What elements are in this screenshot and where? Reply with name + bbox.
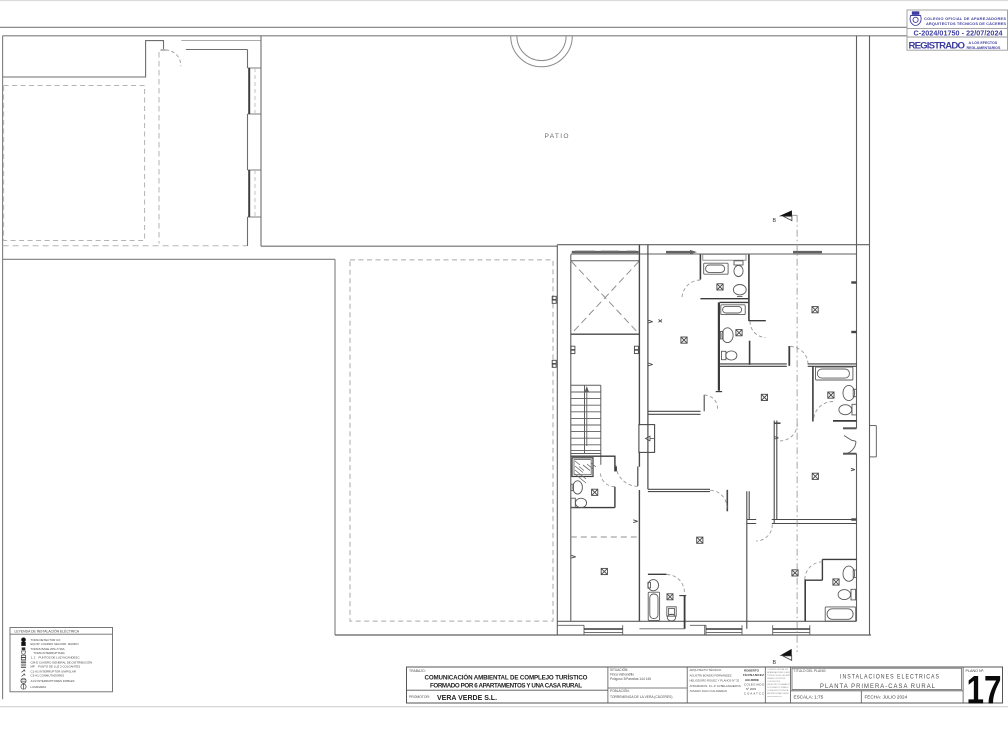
svg-text:B: B xyxy=(773,218,777,224)
svg-text:POBLACIÓN:: POBLACIÓN: xyxy=(610,688,630,693)
svg-text:REGISTRADO: REGISTRADO xyxy=(909,41,966,52)
svg-text:LUMINARIA: LUMINARIA xyxy=(31,685,47,689)
svg-text:COAATCC: COAATCC xyxy=(744,692,764,696)
svg-text:C-2024/01750: C-2024/01750 xyxy=(767,681,781,683)
svg-text:TITULO DEL PLANO:: TITULO DEL PLANO: xyxy=(794,669,827,673)
svg-text:1, 2 PUNTOS DE LUZ INCANDES: 1, 2 PUNTOS DE LUZ INCANDESC. xyxy=(31,655,81,659)
svg-text:ARQUITECTO TÉCNICO:: ARQUITECTO TÉCNICO: xyxy=(690,667,723,672)
svg-text:PLANTA PRIMERA-CASA RURAL: PLANTA PRIMERA-CASA RURAL xyxy=(820,683,936,690)
svg-text:REGLAMENTARIOS: REGLAMENTARIOS xyxy=(967,46,1001,50)
svg-text:PROMOTOR:: PROMOTOR: xyxy=(409,695,430,699)
svg-text:COMUNICACIÓN AMBIENTAL DE COMP: COMUNICACIÓN AMBIENTAL DE COMPLEJO TURÍS… xyxy=(425,673,588,681)
svg-text:17: 17 xyxy=(967,669,1002,713)
svg-text:C-2024/01750 - 22/07/2024: C-2024/01750 - 22/07/2024 xyxy=(914,29,1003,38)
svg-text:AUTENTICIDAD VERIF.: AUTENTICIDAD VERIF. xyxy=(767,692,789,695)
svg-text:ROBERTO: ROBERTO xyxy=(744,669,760,673)
svg-text:AGUIRRE: AGUIRRE xyxy=(745,678,759,682)
svg-text:ATRAMUROS, S.L.P. JA BELANGIER: ATRAMUROS, S.L.P. JA BELANGIEROS xyxy=(690,684,741,688)
svg-text:APAREJADORES Y ARQ.: APAREJADORES Y ARQ. xyxy=(767,671,791,674)
svg-text:Nº 2049: Nº 2049 xyxy=(746,687,756,691)
svg-text:B: B xyxy=(773,660,777,666)
svg-text:AGUSTÍN BONDÍO FERNÁNDEZ: AGUSTÍN BONDÍO FERNÁNDEZ xyxy=(690,673,732,677)
svg-text:HELIODORO RGUEZ Y PLANOS Nº 32: HELIODORO RGUEZ Y PLANOS Nº 32 xyxy=(690,679,740,683)
svg-text:FORMADO POR 6 APARTAMENTOS Y U: FORMADO POR 6 APARTAMENTOS Y UNA CASA RU… xyxy=(430,683,582,690)
svg-text:FECHA: JULIO 2024: FECHA: JULIO 2024 xyxy=(865,695,908,700)
svg-text:SITUACIÓN:: SITUACIÓN: xyxy=(610,667,628,672)
svg-text:FERNANDEZ: FERNANDEZ xyxy=(743,673,764,677)
svg-text:TASADO JULIO CALAVERAS: TASADO JULIO CALAVERAS xyxy=(690,689,727,693)
svg-text:REGISTRO TELEMÁTICO: REGISTRO TELEMÁTICO xyxy=(767,683,791,686)
svg-text:DOCUMENTO VISADO: DOCUMENTO VISADO xyxy=(767,686,789,689)
svg-text:ESCALA: 1:75: ESCALA: 1:75 xyxy=(794,695,824,700)
svg-text:VERA VERDE S.L.: VERA VERDE S.L. xyxy=(437,695,497,702)
svg-text:EQUIP. CUADRO SECUND. MANDO: EQUIP. CUADRO SECUND. MANDO xyxy=(31,642,80,646)
svg-text:Polígono 3/Parcelas 144 145: Polígono 3/Parcelas 144 145 xyxy=(610,677,651,681)
svg-text:C3-A1 CONMUTADORES: C3-A1 CONMUTADORES xyxy=(31,673,65,677)
svg-text:ARQUITECTOS TÉCNICOS DE CÁCERE: ARQUITECTOS TÉCNICOS DE CÁCERES xyxy=(926,21,1006,26)
svg-text:MP PUNTO DE LUZ 2 COLGANTES: MP PUNTO DE LUZ 2 COLGANTES xyxy=(31,665,81,669)
svg-text:A1/2 INTERRUPTORES DOBLES: A1/2 INTERRUPTORES DOBLES xyxy=(31,679,75,683)
svg-text:TRABAJO:: TRABAJO: xyxy=(409,669,426,673)
svg-text:INSTALACIONES ELECTRICAS: INSTALACIONES ELECTRICAS xyxy=(840,674,940,681)
svg-text:COPIA ELECTRÓNICA: COPIA ELECTRÓNICA xyxy=(767,689,789,692)
svg-text:COLEGIO OFICIAL DE: COLEGIO OFICIAL DE xyxy=(767,668,788,671)
svg-text:A LOS EFECTOS: A LOS EFECTOS xyxy=(969,41,998,45)
svg-text:www.coaatcc.es: www.coaatcc.es xyxy=(767,695,781,698)
svg-text:PATIO: PATIO xyxy=(545,133,570,140)
svg-text:TORREMENGA DE LA VERA (CÁCERES: TORREMENGA DE LA VERA (CÁCERES) xyxy=(610,695,672,699)
svg-text:COLEGIADO: COLEGIADO xyxy=(744,682,765,686)
svg-text:VISADO 22/07/2024: VISADO 22/07/2024 xyxy=(767,677,786,680)
svg-text:TOMA INTERRUPTADA: TOMA INTERRUPTADA xyxy=(34,651,65,655)
svg-text:LEYENDA DE INSTALACIÓN ELÉCTRI: LEYENDA DE INSTALACIÓN ELÉCTRICA xyxy=(15,629,80,634)
svg-text:TÉCNICOS DE CÁCERES: TÉCNICOS DE CÁCERES xyxy=(767,674,792,677)
